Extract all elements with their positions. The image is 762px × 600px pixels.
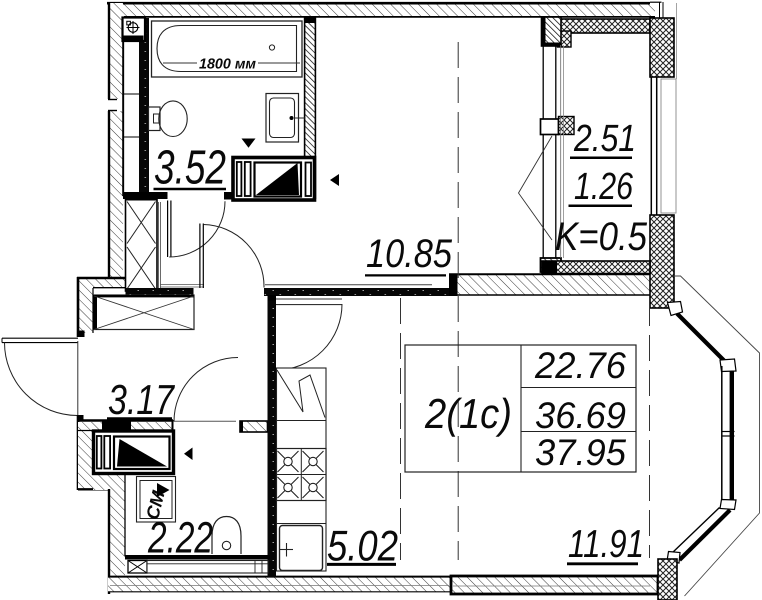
svg-text:2(1c): 2(1c) bbox=[424, 390, 512, 437]
svg-text:1.26: 1.26 bbox=[574, 166, 634, 208]
svg-text:3.52: 3.52 bbox=[154, 142, 226, 195]
svg-text:1800 мм: 1800 мм bbox=[199, 57, 256, 73]
svg-text:K=0.5: K=0.5 bbox=[555, 215, 648, 259]
svg-text:2.22: 2.22 bbox=[147, 514, 213, 563]
svg-text:10.85: 10.85 bbox=[366, 232, 453, 276]
svg-text:22.76: 22.76 bbox=[534, 345, 626, 386]
svg-text:37.95: 37.95 bbox=[535, 432, 626, 473]
svg-text:2.51: 2.51 bbox=[573, 118, 636, 160]
svg-text:11.91: 11.91 bbox=[568, 523, 644, 566]
svg-text:3.17: 3.17 bbox=[108, 376, 175, 423]
svg-text:36.69: 36.69 bbox=[535, 395, 626, 436]
